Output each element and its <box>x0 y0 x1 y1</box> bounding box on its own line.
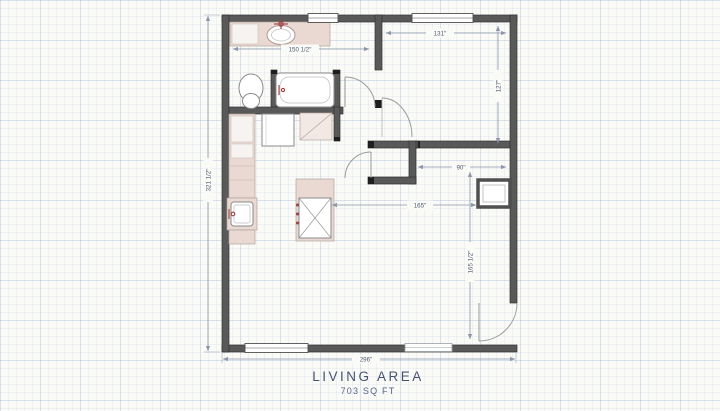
entry-door <box>479 303 517 341</box>
vanity-cabinet <box>232 24 258 44</box>
refrigerator <box>262 114 294 146</box>
entry-closet <box>478 180 510 207</box>
dimension-overall-width: 296" <box>360 357 373 364</box>
wall-right <box>510 15 517 303</box>
windows <box>245 14 473 353</box>
plan-title: LIVING AREA <box>312 369 424 384</box>
window-bathroom-top <box>308 14 338 23</box>
wall-kitchen-stub <box>334 107 340 141</box>
plan-area-label: 703 SQ FT <box>341 386 396 396</box>
wall-cap <box>368 141 374 148</box>
floor-plan: 150 1/2" 131" 127" 90" 165" 165 1/2" 296… <box>0 0 720 411</box>
wall-left <box>222 15 229 352</box>
bedroom-door <box>382 98 412 137</box>
wall-bath-bedroom-divider <box>375 15 382 70</box>
kitchen-counter-lower <box>229 230 255 244</box>
dimension-living-width: 165" <box>414 203 427 210</box>
cooktop-knob <box>296 213 299 216</box>
counter-cabinet <box>231 116 253 142</box>
hall-closet-door <box>345 152 371 178</box>
wall-closet-bottom <box>368 177 416 184</box>
bathroom <box>230 19 334 109</box>
dimension-overall-height: 321 1/2" <box>206 169 213 192</box>
wall-divider-cap <box>375 100 382 108</box>
dimension-bedroom-depth: 127" <box>496 80 503 93</box>
wall-cap <box>368 177 374 184</box>
window-bedroom-top <box>412 14 473 23</box>
dimension-bathroom-width: 150 1/2" <box>289 47 312 54</box>
dimension-hallway-width: 90" <box>456 165 465 172</box>
toilet-seat <box>243 94 260 109</box>
wall-bedroom-bottom <box>415 141 510 148</box>
bathroom-door <box>345 77 375 107</box>
window-living-bottom-2 <box>405 344 452 352</box>
wall-cap <box>271 70 277 74</box>
cooktop-knob <box>296 222 299 225</box>
dimension-bedroom-width: 131" <box>434 31 447 38</box>
floor-plan-canvas: 150 1/2" 131" 127" 90" 165" 165 1/2" 296… <box>0 0 720 411</box>
dimension-living-depth: 165 1/2" <box>468 251 475 274</box>
kitchen <box>227 113 334 244</box>
cooktop-knob <box>296 204 299 207</box>
counter-cabinet <box>231 144 253 158</box>
wall-cap <box>334 137 340 141</box>
window-living-bottom <box>245 344 308 353</box>
wall-cap <box>333 70 340 74</box>
